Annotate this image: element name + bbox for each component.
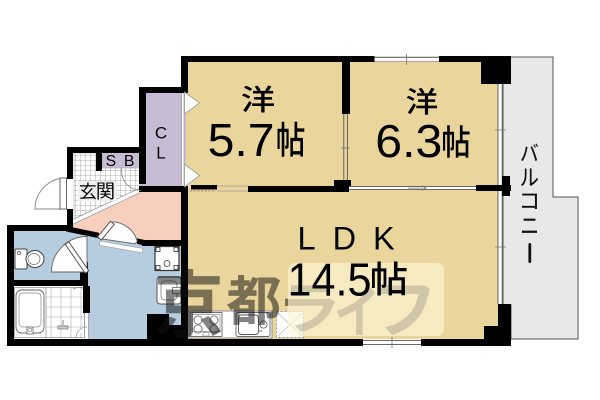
svg-text:6.3: 6.3 <box>375 115 442 167</box>
svg-text:5.7: 5.7 <box>208 114 275 166</box>
svg-text:C: C <box>155 124 167 143</box>
svg-text:14.5: 14.5 <box>288 254 372 306</box>
svg-text:LDK: LDK <box>298 221 412 257</box>
svg-text:SB: SB <box>106 153 143 170</box>
svg-text:L: L <box>156 144 165 163</box>
